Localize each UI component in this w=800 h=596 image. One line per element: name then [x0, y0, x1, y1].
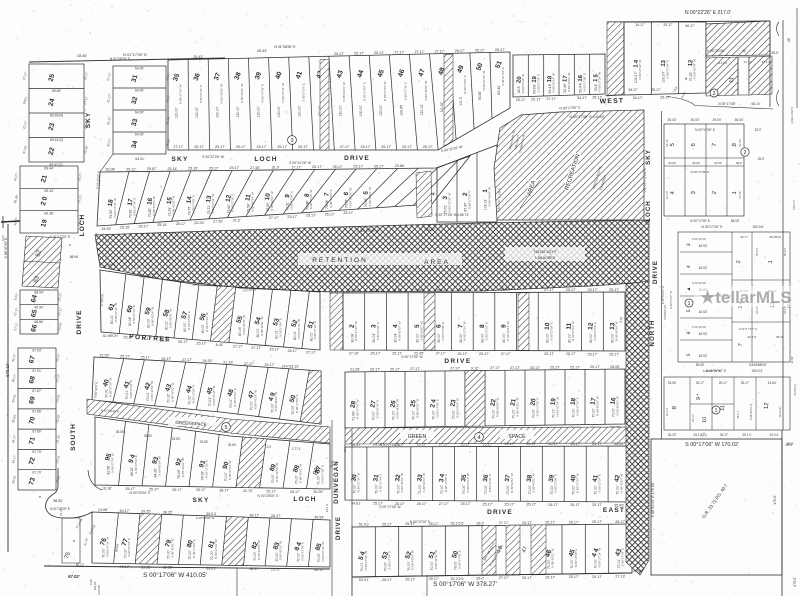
svg-text:67.02': 67.02' — [68, 574, 79, 579]
svg-text:21.26': 21.26' — [350, 368, 360, 372]
svg-text:29.00': 29.00' — [713, 118, 722, 122]
svg-text:S 88°42'01" W: S 88°42'01" W — [279, 541, 283, 561]
svg-text:S 88°42'01" W: S 88°42'01" W — [171, 538, 175, 558]
svg-text:69.38': 69.38' — [44, 211, 53, 215]
svg-text:N 00°17'06" E 133.04': N 00°17'06" E 133.04' — [569, 115, 604, 119]
svg-text:S 88°42'01" W: S 88°42'01" W — [567, 73, 571, 93]
svg-text:62.53': 62.53' — [699, 244, 708, 248]
svg-text:25.17': 25.17' — [209, 166, 219, 170]
svg-text:27.17': 27.17' — [510, 366, 520, 370]
svg-text:25.1 0': 25.1 0' — [742, 433, 752, 437]
svg-text:130.00': 130.00' — [379, 105, 383, 116]
svg-text:S 89°27'34" E: S 89°27'34" E — [575, 397, 579, 416]
svg-text:58.50': 58.50' — [53, 499, 62, 503]
svg-text:N 00°17'06" E: N 00°17'06" E — [205, 460, 209, 479]
svg-text:50.8 3': 50.8 3' — [783, 247, 787, 256]
svg-text:N 89°27'34" W: N 89°27'34" W — [576, 473, 580, 493]
svg-text:25.17': 25.17' — [530, 366, 540, 370]
svg-text:28.17': 28.17' — [615, 520, 625, 524]
svg-text:25.17': 25.17' — [374, 165, 384, 169]
svg-text:25.17': 25.17' — [161, 357, 171, 361]
svg-text:62.53': 62.53' — [699, 310, 708, 314]
svg-text:25.17': 25.17' — [741, 381, 750, 385]
svg-text:25.17': 25.17' — [436, 289, 446, 293]
svg-text:S 89°27'34" E: S 89°27'34" E — [404, 82, 408, 101]
svg-text:25.17': 25.17' — [504, 503, 514, 507]
svg-text:N 89°27'34" W: N 89°27'34" W — [597, 548, 601, 568]
svg-text:S 88°42'01" W: S 88°42'01" W — [515, 397, 519, 417]
svg-text:LOCH: LOCH — [254, 156, 277, 163]
svg-text:25.17': 25.17' — [361, 145, 371, 149]
svg-text:25.17': 25.17' — [501, 288, 511, 292]
svg-text:N 00°17'06": N 00°17'06" — [718, 102, 736, 106]
svg-text:25.17': 25.17' — [526, 503, 536, 507]
svg-text:S 89°27'34" E: S 89°27'34" E — [313, 321, 317, 340]
svg-text:N 89°42'54" W: N 89°42'54" W — [158, 456, 162, 476]
svg-text:27.17': 27.17' — [436, 352, 446, 356]
svg-text:79.00'(1): 79.00'(1) — [793, 384, 797, 396]
svg-text:N 89°42'54" W: N 89°42'54" W — [411, 550, 415, 570]
svg-text:EAST: EAST — [603, 507, 625, 514]
svg-text:N 89°27'34" W: N 89°27'34" W — [111, 453, 115, 473]
svg-text:24.1 4': 24.1 4' — [325, 503, 329, 512]
svg-text:LOCH: LOCH — [293, 496, 316, 503]
svg-text:N 89°42'54" W: N 89°42'54" W — [150, 307, 154, 327]
svg-text:25.03': 25.03' — [668, 118, 677, 122]
svg-text:35.08': 35.08' — [116, 430, 125, 434]
svg-text:SKY: SKY — [193, 497, 210, 504]
svg-text:10: 10 — [702, 417, 709, 424]
svg-text:27.13': 27.13' — [615, 575, 625, 579]
svg-text:N 01°08'26" E: N 01°08'26" E — [110, 57, 131, 61]
svg-text:68.86': 68.86' — [34, 320, 43, 324]
svg-text:25.17': 25.17' — [483, 502, 493, 506]
svg-text:S 89°21'0" E 149.5': S 89°21'0" E 149.5' — [497, 187, 502, 212]
svg-text:S 88°42'01" W: S 88°42'01" W — [240, 84, 244, 104]
svg-text:25.17': 25.17' — [719, 381, 728, 385]
svg-text:25.17': 25.17' — [592, 442, 602, 446]
svg-text:N 00°17'06" E: N 00°17'06" E — [260, 84, 264, 103]
svg-text:27.17': 27.17' — [479, 288, 489, 292]
svg-text:S 88°42'01" W: S 88°42'01" W — [169, 309, 173, 329]
svg-text:81.2 4': 81.2 4' — [665, 407, 669, 416]
svg-text:50.8 3': 50.8 3' — [755, 247, 759, 256]
svg-text:62.1 8': 62.1 8' — [665, 190, 669, 199]
svg-text:120.13': 120.13' — [420, 104, 424, 115]
svg-text:27.17': 27.17' — [439, 502, 449, 506]
svg-text:68.94': 68.94' — [34, 291, 43, 295]
svg-text:130.00': 130.00' — [175, 107, 179, 118]
svg-text:67.87': 67.87' — [32, 389, 41, 393]
svg-text:N 89°27'34" W: N 89°27'34" W — [571, 321, 575, 341]
svg-text:27.17': 27.17' — [173, 145, 183, 149]
svg-text:34.17': 34.17' — [633, 96, 643, 100]
svg-text:150.9 6': 150.9 6' — [752, 225, 764, 229]
svg-text:23.98': 23.98' — [343, 444, 347, 453]
svg-text:S 89°27'34" E: S 89°27'34" E — [301, 83, 305, 102]
svg-text:N 00°17'06" E: N 00°17'06" E — [290, 191, 294, 210]
svg-text:25.17': 25.17' — [382, 522, 392, 526]
svg-text:PERPETUAL: PERPETUAL — [663, 304, 667, 320]
svg-text:N 00°17'06" E: N 00°17'06" E — [690, 219, 710, 223]
svg-text:130.00': 130.00' — [297, 105, 301, 116]
svg-text:130.00': 130.00' — [277, 106, 281, 117]
svg-text:25.17': 25.17' — [569, 520, 579, 524]
svg-text:30.00': 30.00' — [691, 118, 700, 122]
svg-text:32.5 4": 32.5 4" — [747, 335, 756, 339]
svg-text:1: 1 — [714, 408, 717, 414]
svg-text:25.17': 25.17' — [236, 145, 246, 149]
svg-text:36.00': 36.00' — [735, 118, 744, 122]
svg-text:16.18': 16.18' — [102, 487, 112, 491]
svg-text:N 89°42'54" W: N 89°42'54" W — [495, 398, 499, 418]
svg-text:375.0': 375.0' — [793, 577, 797, 587]
svg-text:S 89°27'34" E: S 89°27'34" E — [593, 322, 597, 341]
svg-text:S 01°32'23": S 01°32'23" — [692, 325, 707, 329]
svg-text:N 00°17'06" E: N 00°17'06" E — [554, 474, 558, 493]
svg-text:25.43': 25.43' — [193, 55, 203, 59]
svg-text:62.53': 62.53' — [699, 266, 708, 270]
svg-text:64.00': 64.00' — [135, 133, 144, 137]
svg-text:25.17': 25.17' — [550, 366, 560, 370]
svg-text:67.25': 67.25' — [738, 191, 742, 199]
svg-text:9.06: 9.06 — [619, 317, 624, 323]
svg-text:*: * — [69, 244, 71, 250]
svg-text:30.99': 30.99' — [633, 569, 642, 573]
svg-text:S 01°32'23": S 01°32'23" — [692, 237, 707, 241]
svg-text:S 89°27'34" E: S 89°27'34" E — [133, 198, 137, 217]
svg-text:130.00': 130.00' — [236, 106, 240, 117]
svg-text:111.52': 111.52' — [440, 101, 444, 112]
svg-text:27.35': 27.35' — [213, 220, 223, 224]
svg-text:25.17': 25.17' — [548, 503, 558, 507]
svg-text:25.17': 25.17' — [178, 340, 188, 344]
svg-text:N 00°17'06" E: N 00°17'06" E — [441, 322, 445, 341]
svg-text:25.60': 25.60' — [228, 443, 237, 447]
svg-text:S 88°42'01" W: S 88°42'01" W — [171, 383, 175, 403]
svg-text:67.93': 67.93' — [32, 349, 41, 353]
svg-text:S 89°27'34" E: S 89°27'34" E — [484, 322, 488, 341]
svg-text:25.15': 25.15' — [188, 167, 198, 171]
svg-text:S 00°22'26": S 00°22'26" — [707, 49, 727, 53]
svg-text:1: 1 — [687, 301, 690, 307]
svg-text:S 89°27'34" E: S 89°27'34" E — [233, 388, 237, 407]
svg-text:N 00°17'06" E: N 00°17'06" E — [463, 75, 467, 94]
svg-text:N 89°27'34" W: N 89°27'34" W — [211, 194, 215, 214]
svg-text:25.17': 25.17' — [395, 443, 405, 447]
svg-text:N 89°27'34" W: N 89°27'34" W — [466, 473, 470, 493]
svg-text:N 00°17'06" E: N 00°17'06" E — [187, 311, 191, 330]
svg-text:38.17': 38.17' — [249, 567, 259, 571]
svg-text:S 89°27'34" E: S 89°27'34" E — [621, 548, 625, 567]
svg-text:67.25': 67.25' — [738, 139, 742, 147]
svg-text:S 88°42'01" W: S 88°42'01" W — [368, 187, 372, 207]
svg-text:N 89°27'34" W: N 89°27'34" W — [482, 71, 486, 91]
svg-text:38.17': 38.17' — [219, 489, 229, 493]
svg-text:25.17': 25.17' — [373, 443, 383, 447]
svg-text:S 00°22'26" W: S 00°22'26" W — [289, 161, 312, 165]
svg-text:7: 7 — [738, 343, 744, 347]
svg-text:S 00°22'26" W: S 00°22'26" W — [202, 155, 225, 159]
svg-text:27.35': 27.35' — [250, 166, 260, 170]
svg-text:25.0': 25.0' — [787, 442, 794, 446]
svg-text:49.54': 49.54' — [314, 515, 324, 519]
svg-text:N 00°17'06" E: N 00°17'06" E — [582, 73, 586, 92]
svg-text:25.17': 25.17' — [333, 165, 343, 169]
svg-text:S 89°27'34" E: S 89°27'34" E — [598, 474, 602, 493]
svg-text:S 89°27'34" E: S 89°27'34" E — [199, 85, 203, 104]
svg-text:N 00°17'06" E: N 00°17'06" E — [191, 385, 195, 404]
svg-text:25.17': 25.17' — [390, 367, 400, 371]
svg-text:25.17': 25.17' — [570, 365, 580, 369]
svg-text:AREA: AREA — [424, 259, 450, 266]
svg-text:34.52': 34.52' — [203, 359, 213, 363]
svg-text:25.11': 25.11' — [126, 167, 136, 171]
svg-text:27.17': 27.17' — [499, 521, 509, 525]
svg-text:25.16': 25.16' — [120, 226, 130, 230]
svg-text:78.6 1: 78.6 1 — [736, 411, 740, 419]
svg-text:GREEN: GREEN — [408, 434, 427, 440]
svg-text:25.17': 25.17' — [290, 490, 300, 494]
svg-text:N 89°27'34" W: N 89°27'34" W — [555, 397, 559, 417]
svg-text:25.17': 25.17' — [194, 145, 204, 149]
svg-text:N 89°42'54" W: N 89°42'54" W — [349, 188, 353, 208]
svg-text:25.17': 25.17' — [371, 289, 381, 293]
svg-text:N 89°27'34" W: N 89°27'34" W — [106, 537, 110, 557]
svg-text:S 88°42'01" W: S 88°42'01" W — [532, 473, 536, 493]
svg-text:69.69': 69.69' — [52, 89, 61, 93]
svg-text:S 88°42'01" W: S 88°42'01" W — [422, 473, 426, 493]
svg-text:25.17': 25.17' — [592, 520, 602, 524]
svg-text:25.17': 25.17' — [139, 224, 149, 228]
svg-text:31.53': 31.53' — [99, 353, 109, 357]
svg-text:27.17': 27.17' — [546, 97, 556, 101]
svg-text:★tellarMLS: ★tellarMLS — [700, 288, 792, 307]
svg-text:S 89°27'34" E: S 89°27'34" E — [378, 473, 382, 492]
svg-text:S 88°42'01" W: S 88°42'01" W — [415, 399, 419, 419]
svg-text:25.17': 25.17' — [569, 575, 579, 579]
svg-text:N 00°22'26" E 217.0': N 00°22'26" E 217.0' — [685, 10, 731, 16]
svg-text:25.17': 25.17' — [277, 145, 287, 149]
svg-text:25.80': 25.80' — [200, 440, 209, 444]
svg-text:DUNVEGAN: DUNVEGAN — [333, 460, 340, 503]
svg-text:S 89°27'34" E: S 89°27'34" E — [488, 474, 492, 493]
svg-text:25.17': 25.17' — [660, 95, 670, 99]
svg-text:2: 2 — [712, 91, 715, 97]
svg-text:DRIVE: DRIVE — [335, 516, 342, 540]
svg-text:N 89°42'54" W: N 89°42'54" W — [424, 81, 428, 101]
svg-text:30.00': 30.00' — [668, 161, 676, 165]
svg-text:S 00°17'06" W: S 00°17'06" W — [401, 355, 423, 359]
svg-text:5: 5 — [224, 425, 227, 431]
svg-text:62.53': 62.53' — [699, 354, 708, 358]
svg-text:25.17': 25.17' — [592, 503, 602, 507]
svg-text:N 00°20'00" E: N 00°20'00" E — [129, 491, 151, 495]
svg-text:25.17': 25.17' — [516, 98, 526, 102]
svg-text:27.17': 27.17' — [306, 351, 316, 355]
svg-text:42.99': 42.99' — [790, 356, 794, 364]
svg-text:DRIVE: DRIVE — [344, 155, 370, 162]
svg-text:S 89°27'34" E: S 89°27'34" E — [387, 551, 391, 570]
svg-text:EASEMENT: EASEMENT — [749, 363, 767, 367]
svg-text:55.53': 55.53' — [696, 363, 705, 367]
svg-text:S 89°27'34" E: S 89°27'34" E — [376, 322, 380, 341]
svg-text:27.17': 27.17' — [501, 352, 511, 356]
svg-text:69.44': 69.44' — [44, 167, 53, 171]
svg-text:N 00°20'00" E: N 00°20'00" E — [257, 494, 279, 498]
svg-text:22.45': 22.45' — [414, 289, 424, 293]
svg-text:N 89°42'54" W: N 89°42'54" W — [510, 473, 514, 493]
svg-text:S 89°27'34" E: S 89°27'34" E — [536, 74, 540, 93]
svg-text:N 89°27'34" W: N 89°27'34" W — [598, 72, 602, 92]
svg-text:N 89°27'34" W: N 89°27'34" W — [309, 190, 313, 210]
svg-text:S 01°0 7'5 7" E: S 01°0 7'5 7" E — [739, 327, 758, 331]
svg-text:SKY: SKY — [645, 149, 652, 165]
svg-text:36.02': 36.02' — [614, 442, 624, 446]
svg-text:25.17': 25.17' — [172, 488, 182, 492]
svg-text:670.10': 670.10' — [5, 363, 10, 377]
svg-text:S 88°42'01" W: S 88°42'01" W — [342, 82, 346, 102]
svg-text:25.17': 25.17' — [588, 352, 598, 356]
svg-text:0.00 AC: 0.00 AC — [97, 585, 101, 595]
svg-text:S 00°17'06" W 170.02': S 00°17'06" W 170.02' — [685, 442, 739, 448]
svg-text:· · ·: · · · — [237, 348, 243, 353]
svg-text:27.19': 27.19' — [349, 289, 359, 293]
svg-text:N 00°17'06" E: N 00°17'06" E — [320, 465, 324, 484]
svg-text:730135 SQ FT: 730135 SQ FT — [533, 250, 557, 254]
svg-text:S 88°52'33" E: S 88°52'33" E — [749, 404, 753, 421]
svg-text:N 00°17'06" E: N 00°17'06" E — [444, 474, 448, 493]
svg-text:25.17': 25.17' — [570, 503, 580, 507]
svg-text:N 00°17'06" E: N 00°17'06" E — [192, 539, 196, 558]
svg-text:25.17': 25.17' — [455, 49, 465, 53]
svg-text:N 88°27'37" W: N 88°27'37" W — [669, 291, 673, 310]
svg-text:34.17': 34.17' — [577, 96, 587, 100]
svg-text:N 00°17'06" E: N 00°17'06" E — [457, 550, 461, 569]
svg-text:30.00': 30.00' — [692, 161, 700, 165]
svg-text:53.0 1: 53.0 1 — [359, 578, 369, 582]
svg-text:S 89°27'34" E: S 89°27'34" E — [501, 67, 505, 86]
svg-text:13.08': 13.08' — [98, 508, 108, 512]
svg-text:25.17': 25.17' — [475, 49, 485, 53]
svg-text:67.86': 67.86' — [32, 410, 41, 414]
svg-text:38.00': 38.00' — [731, 219, 740, 223]
svg-text:25.17': 25.17' — [461, 442, 471, 446]
svg-text:25.17': 25.17' — [264, 363, 274, 367]
svg-text:25.17': 25.17' — [312, 165, 322, 169]
svg-text:130.00': 130.00' — [338, 105, 342, 116]
svg-text:35.0': 35.0' — [771, 51, 779, 55]
svg-text:27.17': 27.17' — [182, 358, 192, 362]
svg-text:25.17': 25.17' — [566, 288, 576, 292]
svg-text:25.17': 25.17' — [417, 443, 427, 447]
svg-text:25.17': 25.17' — [374, 51, 384, 55]
svg-text:N 89°27'34" W: N 89°27'34" W — [108, 378, 112, 398]
svg-text:3: 3 — [290, 138, 293, 144]
svg-text:S 88°42'01" W: S 88°42'01" W — [419, 321, 423, 341]
svg-text:N 00°17'06" E: N 00°17'06" E — [701, 225, 723, 229]
svg-text:N 89°27'34" W: N 89°27'34" W — [463, 321, 467, 341]
svg-text:25.17': 25.17' — [196, 342, 206, 346]
svg-text:30.00': 30.00' — [313, 490, 323, 494]
svg-text:62.53': 62.53' — [699, 332, 708, 336]
svg-text:25.17': 25.17' — [548, 442, 558, 446]
svg-text:29.00': 29.00' — [714, 161, 722, 165]
svg-text:25.17': 25.17' — [720, 433, 729, 437]
svg-text:25.17': 25.17' — [287, 215, 297, 219]
svg-text:25.17': 25.17' — [271, 514, 281, 518]
svg-text:1: 1 — [768, 260, 774, 264]
svg-text:N 00°17'06" E: N 00°17'06" E — [295, 394, 299, 413]
svg-text:23.86': 23.86' — [395, 164, 405, 168]
svg-text:25.17': 25.17' — [334, 52, 344, 56]
svg-text:39.9 3: 39.9 3 — [206, 512, 216, 516]
svg-text:69.61'(2): 69.61'(2) — [50, 138, 63, 142]
svg-text:25.17': 25.17' — [504, 442, 514, 446]
svg-text:N 88°52'33" W: N 88°52'33" W — [661, 286, 665, 305]
svg-text:N 89°27'34" W: N 89°27'34" W — [354, 321, 358, 341]
svg-text:67.70': 67.70' — [32, 470, 41, 474]
svg-text:25.17': 25.17' — [176, 222, 186, 226]
svg-text:25.17': 25.17' — [417, 502, 427, 506]
svg-text:31.0': 31.0' — [233, 219, 241, 223]
svg-text:N 89°42'54" W: N 89°42'54" W — [506, 321, 510, 341]
svg-text:25.17': 25.17' — [570, 442, 580, 446]
svg-text:25.17': 25.17' — [588, 288, 598, 292]
svg-text:35.28'(3): 35.28'(3) — [769, 235, 781, 239]
svg-text:25.17': 25.17' — [609, 352, 619, 356]
svg-text:S 89°27'34" E: S 89°27'34" E — [127, 538, 131, 557]
svg-text:2: 2 — [736, 260, 742, 264]
svg-text:N 00°17'06" E: N 00°17'06" E — [574, 549, 578, 568]
svg-text:25.17': 25.17' — [196, 488, 206, 492]
svg-text:158.2 5': 158.2 5' — [792, 199, 796, 210]
svg-text:9.12': 9.12' — [471, 366, 479, 370]
svg-text:64.00': 64.00' — [135, 89, 144, 93]
svg-text:80.3 6: 80.3 6 — [691, 414, 695, 422]
svg-text:25.17': 25.17' — [353, 165, 363, 169]
svg-text:38.25': 38.25' — [163, 510, 173, 514]
svg-text:S 00°17'06" W 410.05': S 00°17'06" W 410.05' — [143, 571, 207, 579]
svg-text:N 89°27'34" W: N 89°27'34" W — [521, 74, 525, 94]
svg-text:34.61': 34.61' — [351, 502, 361, 506]
svg-text:N 89°27'34" W: N 89°27'34" W — [383, 81, 387, 101]
svg-text:25.17': 25.17' — [402, 145, 412, 149]
svg-text:S 88°42'01" W: S 88°42'01" W — [299, 464, 303, 484]
svg-text:RETENTION: RETENTION — [312, 257, 368, 264]
svg-text:25.17': 25.17' — [609, 288, 619, 292]
svg-text:25.17': 25.17' — [531, 98, 541, 102]
svg-text:25.17': 25.17' — [429, 522, 439, 526]
svg-text:25.17': 25.17' — [526, 442, 536, 446]
svg-text:25.17': 25.17' — [545, 576, 555, 580]
svg-text:25.17': 25.17' — [229, 166, 239, 170]
svg-text:25.1 8(D): 25.1 8(D) — [693, 433, 706, 437]
svg-text:25.17': 25.17' — [215, 145, 225, 149]
svg-text:130.00': 130.00' — [216, 106, 220, 117]
svg-text:25.17': 25.17' — [141, 356, 151, 360]
svg-text:N 89°42'54" W: N 89°42'54" W — [693, 59, 697, 79]
svg-text:101.5': 101.5' — [459, 96, 463, 105]
svg-text:27.17': 27.17' — [340, 145, 350, 149]
svg-text:25.17': 25.17' — [392, 289, 402, 293]
svg-text:N 89°27'34" W: N 89°27'34" W — [205, 312, 209, 332]
svg-text:N 89°42'54" W: N 89°42'54" W — [400, 473, 404, 493]
svg-text:25.80': 25.80' — [144, 434, 153, 438]
svg-text:25.17': 25.17' — [457, 352, 467, 356]
svg-text:S 89°27'34" E: S 89°27'34" E — [665, 60, 669, 79]
svg-text:25.17': 25.17' — [483, 442, 493, 446]
